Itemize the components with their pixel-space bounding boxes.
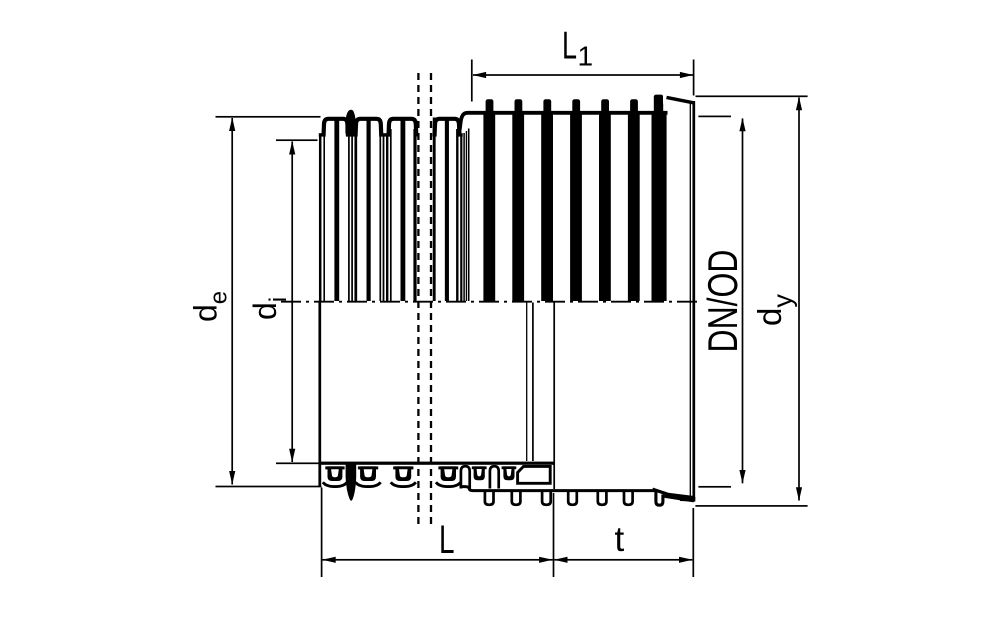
svg-text:L: L bbox=[562, 25, 577, 68]
svg-text:DN/OD: DN/OD bbox=[699, 250, 746, 353]
svg-text:L: L bbox=[439, 518, 455, 562]
svg-text:1: 1 bbox=[578, 41, 594, 72]
svg-text:t: t bbox=[615, 520, 625, 559]
